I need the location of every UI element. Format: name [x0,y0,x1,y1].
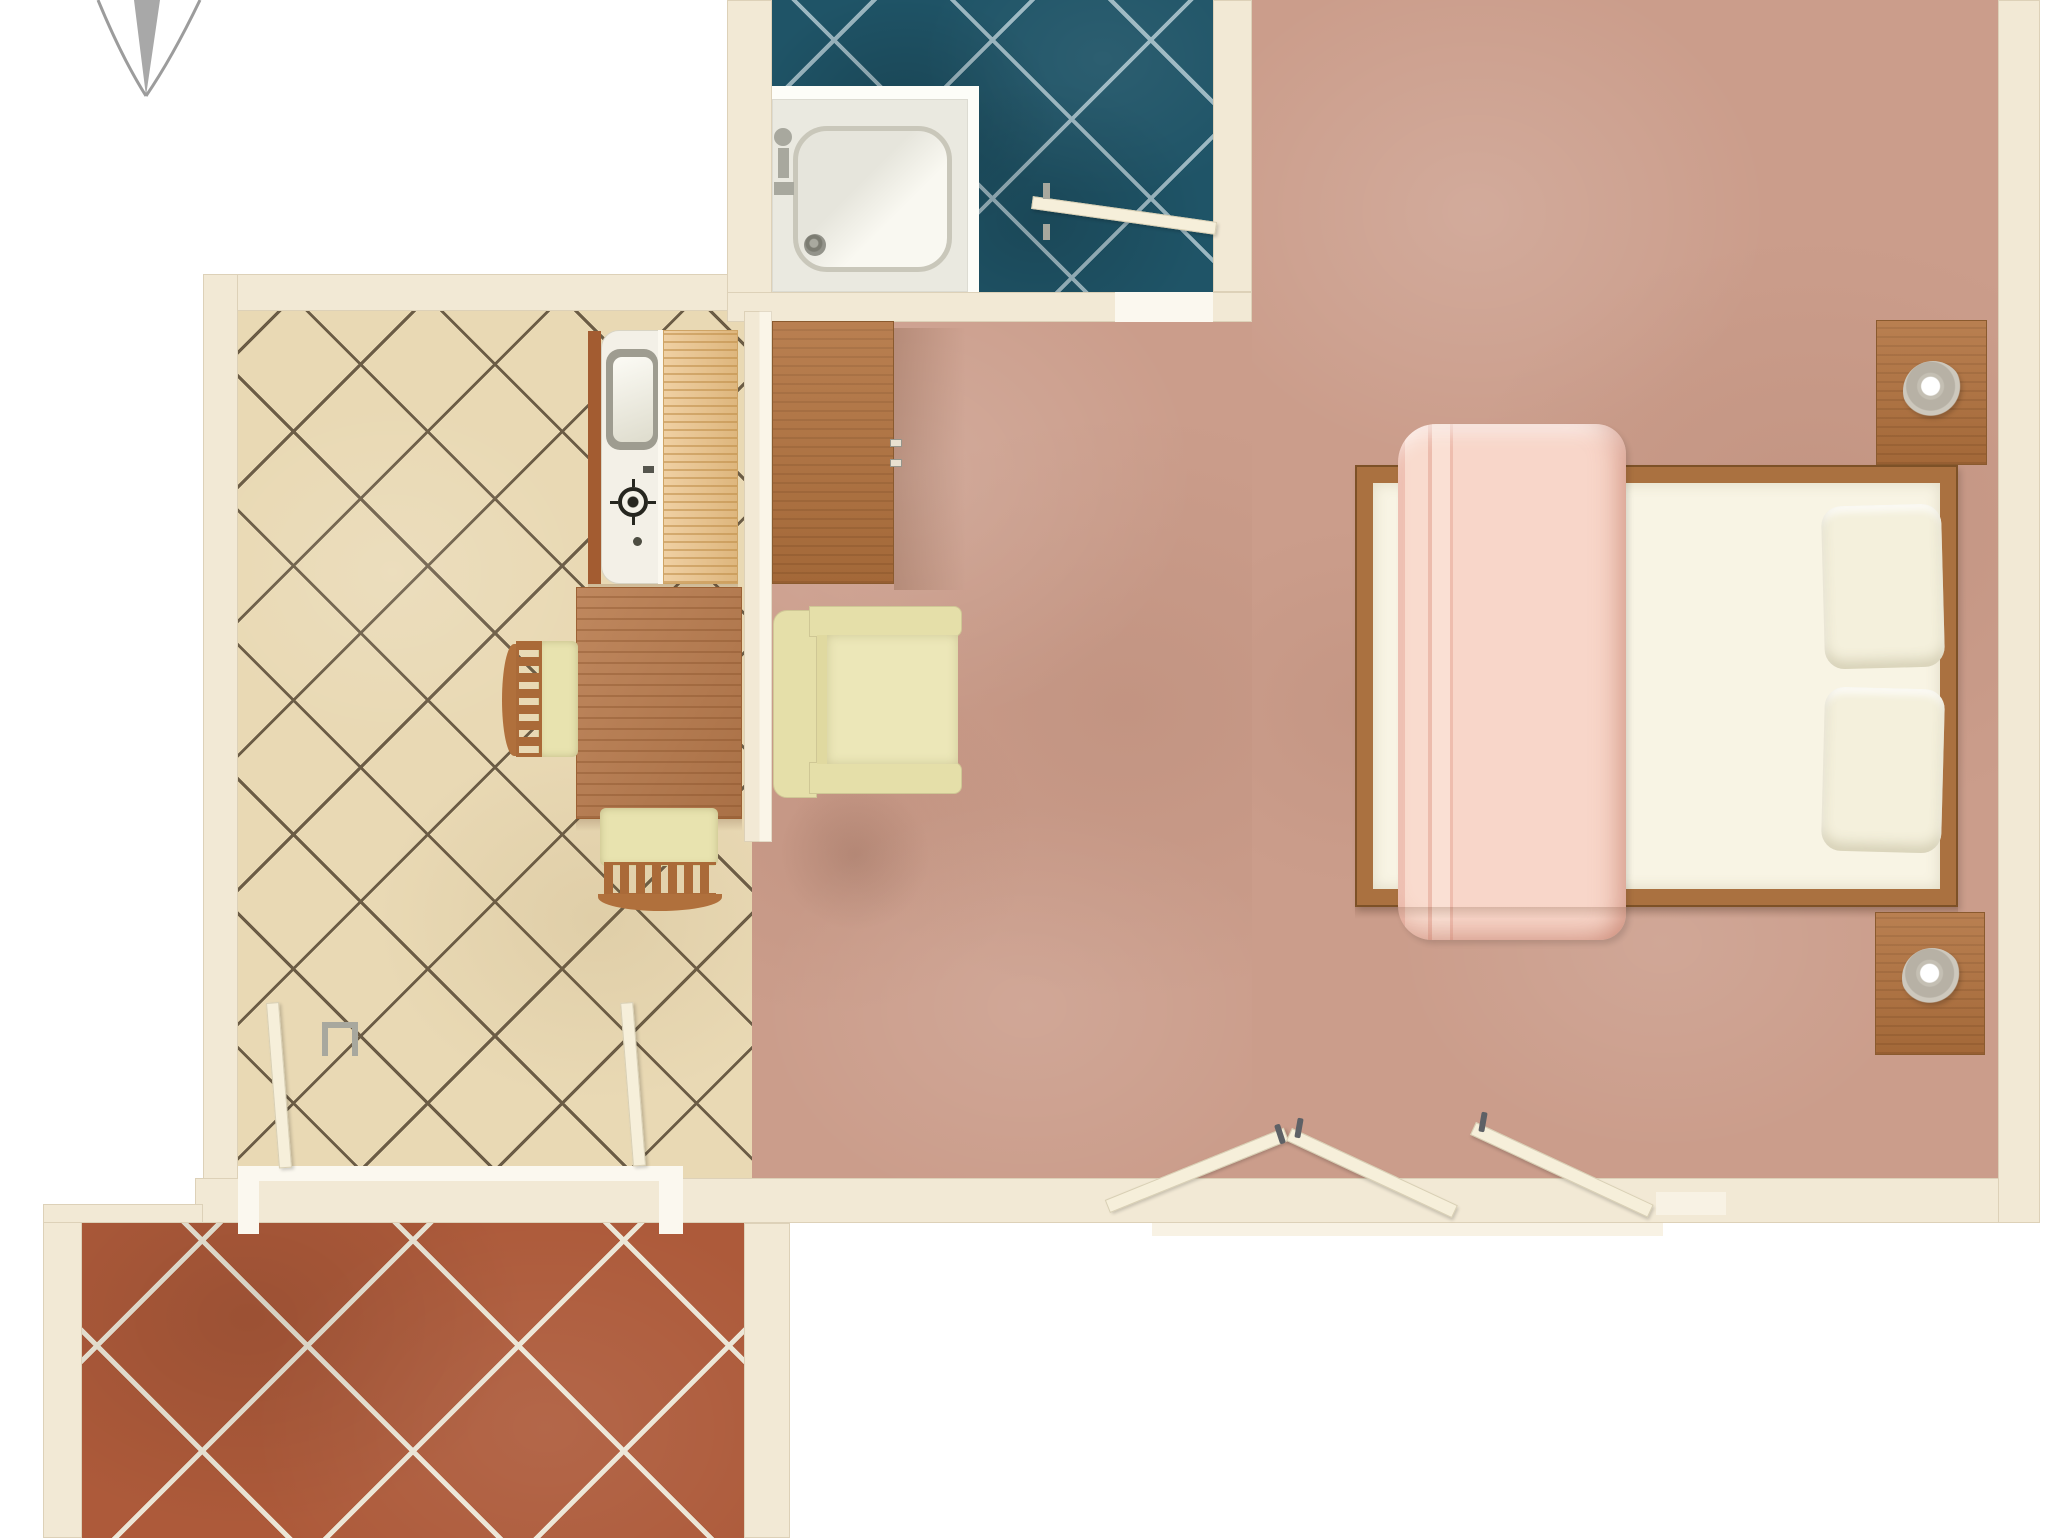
burner-tick-s [632,517,635,525]
terrace-door-handle-icon2 [322,1022,328,1056]
dining-table [576,587,742,819]
shower-faucet-base [774,182,794,195]
terrace-door-threshold [238,1166,683,1181]
floor-plan [0,0,2048,1538]
shower-faucet-stem [778,148,789,178]
south-door-jamb-piece [1656,1192,1726,1215]
bed-pillow-top [1821,503,1945,669]
bathroom-door-handle-icon2 [1043,224,1050,240]
maple-counter [663,330,738,584]
terrace-top-wall-link [43,1204,203,1223]
bathroom-door-threshold [1115,292,1213,322]
kitchen-sink-basin [613,357,653,442]
bathroom-left-wall [727,0,772,311]
south-wall-outer-strip [1152,1223,1663,1236]
shower-drain [804,234,826,256]
terrace-door-handle-icon3 [352,1022,358,1056]
bathroom-right-wall [1213,0,1252,292]
counter-knob-dot [633,537,642,546]
wardrobe-cabinet [772,321,894,584]
armchair-seat [817,635,958,764]
chair-south-slats [604,862,716,896]
burner-tick-w [610,501,618,504]
terrace-tile-floor [82,1223,744,1538]
armchair-floor-shadow [780,780,930,930]
burner-tick-n [632,479,635,487]
cabinet-handle-top [890,439,902,447]
chair-west-slats [516,641,542,757]
sink-faucet-icon [643,466,654,473]
terrace-door-jamb-left [238,1166,259,1234]
burner-tick-e [648,501,656,504]
chair-south-seat [600,808,718,866]
terrace-right-wall [744,1223,790,1538]
terrace-door-jamb-right [659,1166,683,1234]
cabinet-handle-bottom [890,459,902,467]
bathroom-door-handle-icon [1043,183,1050,199]
gas-burner-icon [618,487,648,517]
compass-north-icon [88,0,208,100]
armchair-arm-bottom [809,762,962,794]
kitchen-bedroom-wall-stub [744,311,772,842]
bed-shadow [1355,907,1958,919]
bed-pink-blanket [1398,424,1626,940]
bedroom-right-wall [1998,0,2040,1223]
kitchen-top-wall [203,274,772,311]
shower-faucet-icon [774,128,792,146]
bed-pillow-bottom [1821,686,1945,853]
cabinet-floor-shadow [894,328,966,590]
chair-west-seat [538,641,578,757]
counter-edge-strip [588,331,601,584]
armchair-arm-top [809,606,962,637]
bedside-lamp-south-icon [1902,948,1962,1008]
terrace-left-wall [43,1204,82,1538]
kitchen-left-wall [203,274,238,1180]
bedside-lamp-north-icon [1903,361,1963,421]
